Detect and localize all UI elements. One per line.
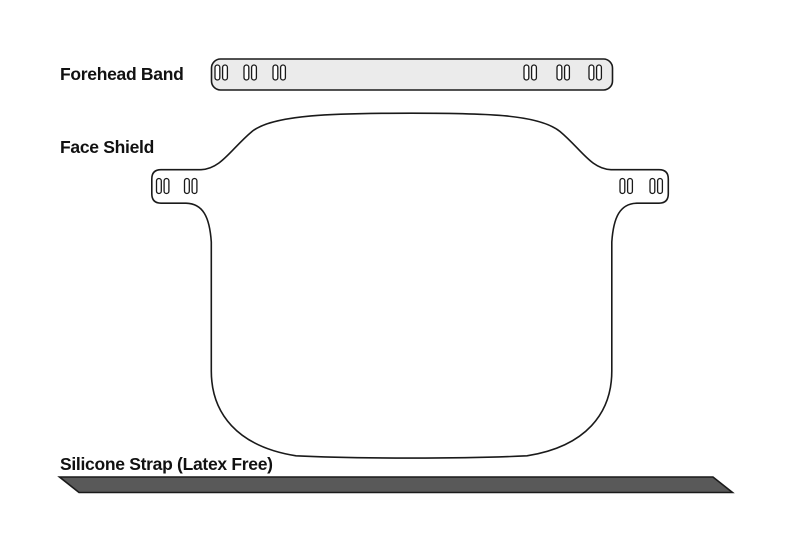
diagram-canvas: Forehead Band Face Shield Silicone Strap… (0, 0, 800, 552)
face-shield-shape (152, 113, 669, 458)
face-shield-diagram: Forehead Band Face Shield Silicone Strap… (0, 0, 800, 552)
forehead-band-outline (212, 59, 613, 90)
face-shield-outline (152, 113, 669, 458)
silicone-strap-shape (60, 477, 733, 493)
silicone-strap-label: Silicone Strap (Latex Free) (60, 454, 273, 474)
face-shield-label: Face Shield (60, 137, 154, 157)
forehead-band-shape (212, 59, 613, 90)
forehead-band-label: Forehead Band (60, 64, 183, 84)
